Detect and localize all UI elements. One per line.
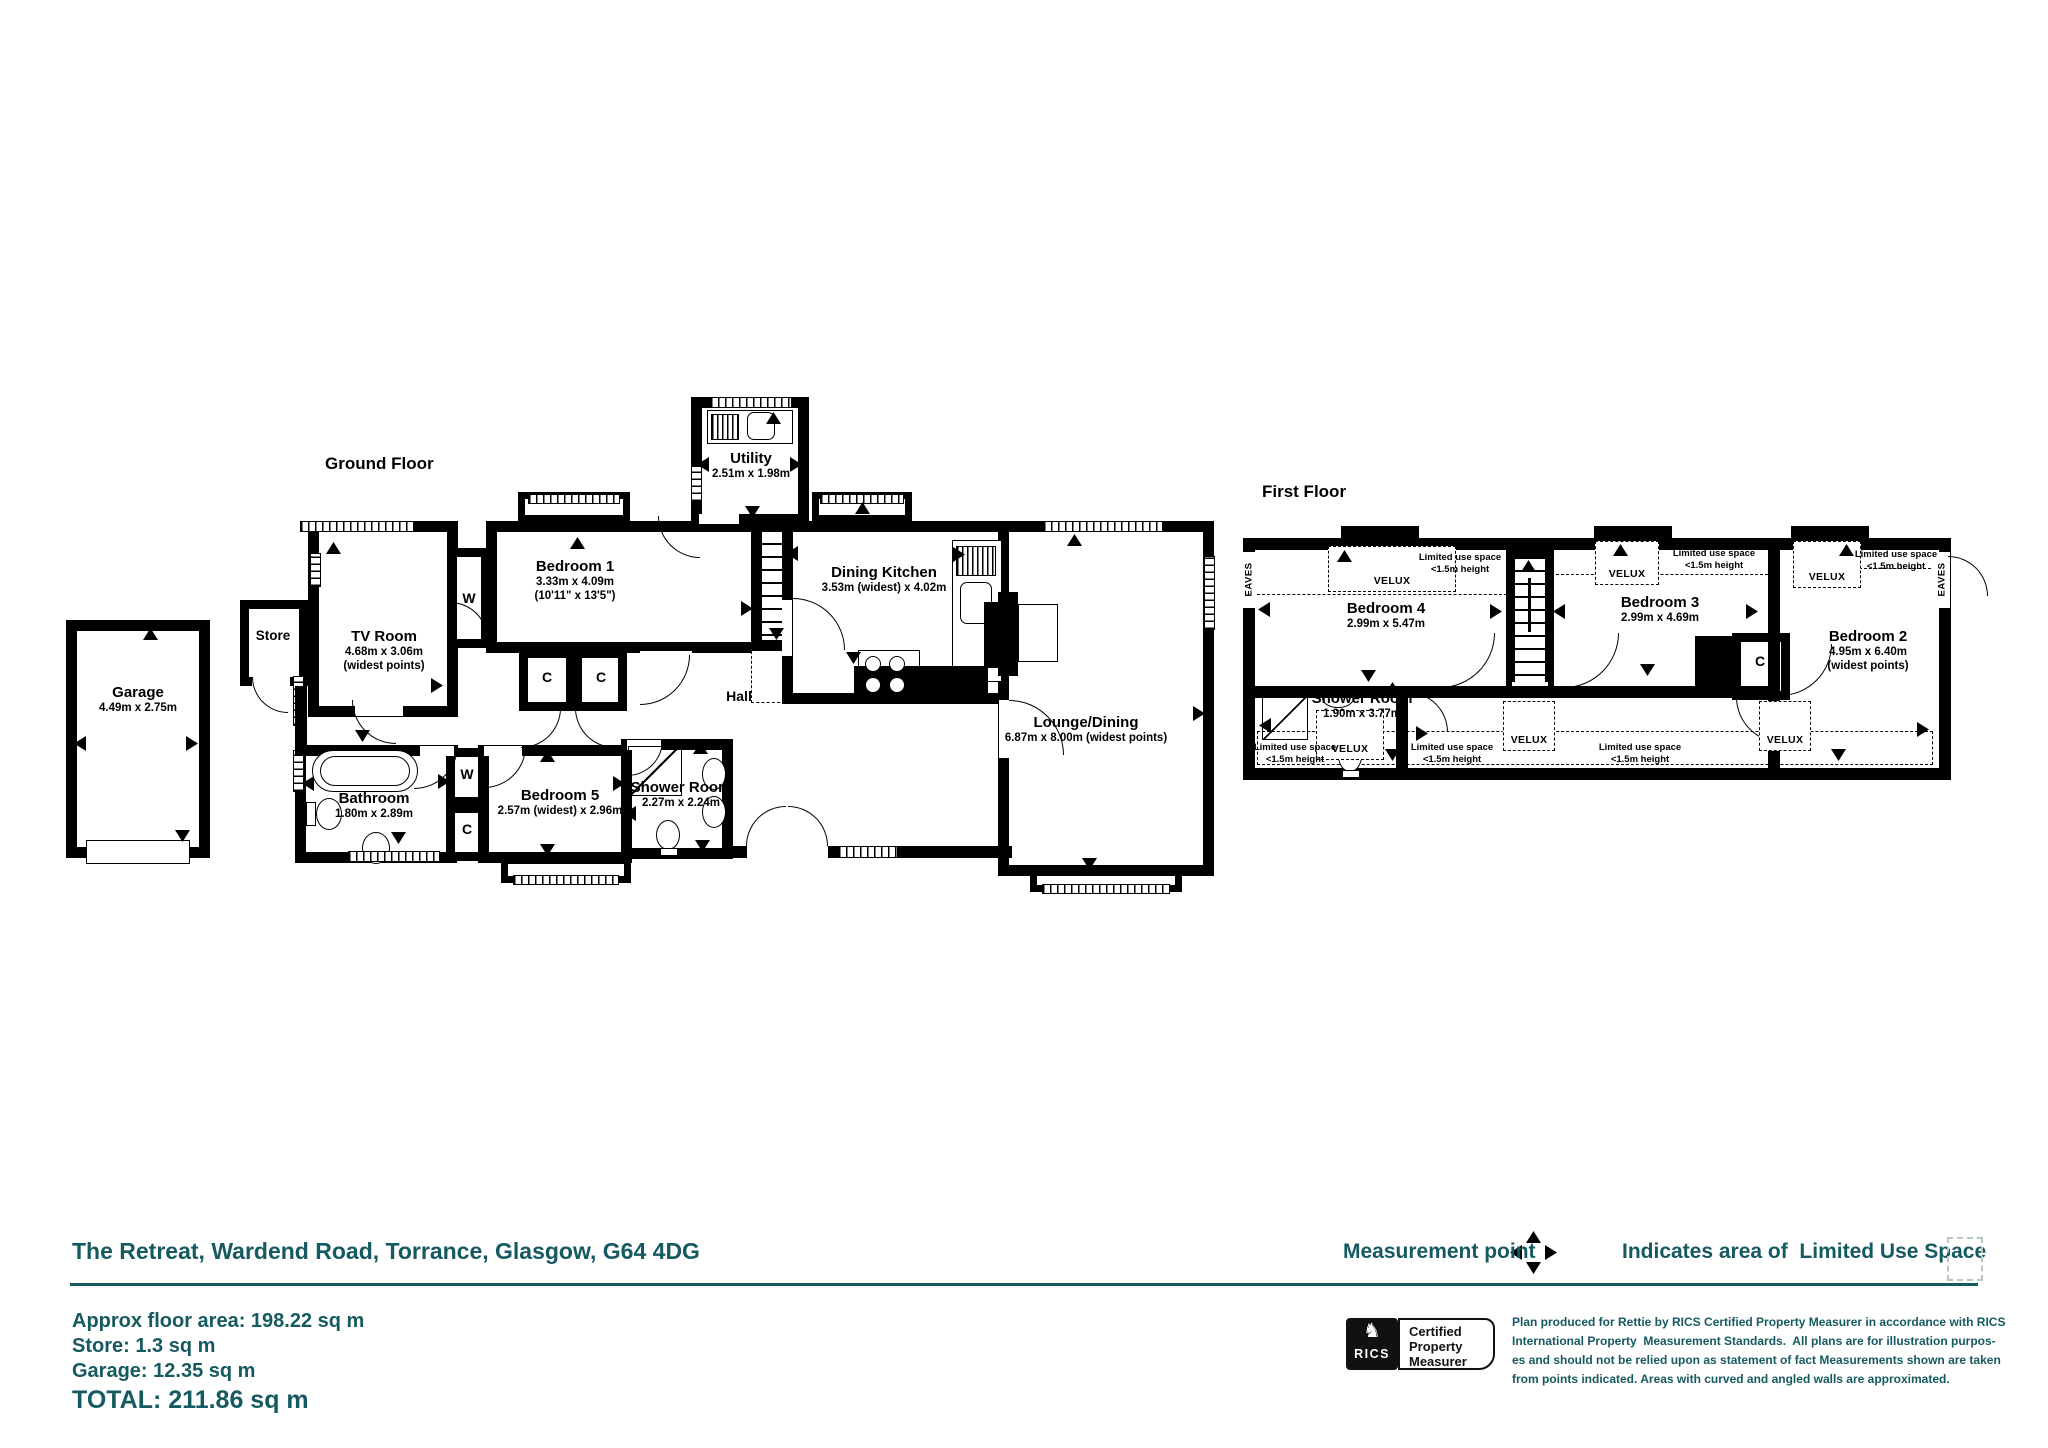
wardrobe-label: W <box>460 766 473 782</box>
toilet-shower-gf <box>656 820 680 850</box>
room-lounge <box>998 521 1214 876</box>
cupboard-label: C <box>542 669 552 685</box>
window <box>293 750 304 792</box>
window <box>820 494 904 504</box>
rics-certified-badge: Certified Property Measurer <box>1398 1318 1495 1370</box>
wall <box>295 686 307 756</box>
legend-limited-use: Indicates area of Limited Use Space <box>1622 1240 1986 1264</box>
eaves-label-right: EAVES <box>1937 552 1948 608</box>
bedroom1-label: Bedroom 1 3.33m x 4.09m (10'11" x 13'5") <box>535 558 616 604</box>
toilet-cistern <box>306 802 316 826</box>
limited-use-legend-icon <box>1947 1237 1983 1281</box>
disclaimer-line: International Property Measurement Stand… <box>1512 1332 1996 1352</box>
velux-roof-window: VELUX <box>1759 701 1811 751</box>
wall <box>725 846 747 858</box>
store-label: Store <box>256 628 291 644</box>
wall <box>898 846 1012 858</box>
wall <box>998 592 1018 676</box>
limited-use-space-label: Limited use space<1.5m height <box>1599 742 1681 765</box>
bedroom3-label: Bedroom 3 2.99m x 4.69m <box>1621 594 1699 626</box>
velux-label: VELUX <box>1609 568 1646 580</box>
cupboard-label: C <box>1755 653 1765 669</box>
hob-burner <box>865 677 881 693</box>
kitchen-drainer <box>956 546 996 576</box>
kitchen-label: Dining Kitchen 3.53m (widest) x 4.02m <box>822 564 947 596</box>
tv-room-label: TV Room 4.68m x 3.06m (widest points) <box>343 628 424 674</box>
garage-label: Garage 4.49m x 2.75m <box>99 684 177 716</box>
door-arc <box>788 806 828 846</box>
door-arc <box>746 806 786 846</box>
window <box>1043 521 1163 532</box>
window <box>528 494 620 504</box>
bedroom2-label: Bedroom 2 4.95m x 6.40m (widest points) <box>1827 628 1908 674</box>
velux-roof-window: VELUX <box>1793 541 1861 588</box>
eaves-label-left: EAVES <box>1244 552 1255 608</box>
legend-measurement-point: Measurement point <box>1343 1240 1536 1264</box>
door-arc <box>352 700 396 744</box>
bathtub-inner <box>320 756 410 786</box>
bedroom5-label: Bedroom 5 2.57m (widest) x 2.96m <box>498 787 623 819</box>
hob-burner <box>889 677 905 693</box>
door-arc <box>521 708 561 748</box>
disclaimer-line: from points indicated. Areas with curved… <box>1512 1370 1950 1390</box>
window <box>1204 556 1215 630</box>
window <box>348 851 440 862</box>
compass-arrow-right <box>1545 1245 1557 1260</box>
limited-use-space-label: Limited use space<1.5m height <box>1254 742 1336 765</box>
cupboard-label: C <box>596 669 606 685</box>
velux-label: VELUX <box>1809 571 1846 583</box>
toilet-cistern <box>1342 770 1360 778</box>
bathroom-label: Bathroom 1.80m x 2.89m <box>335 790 413 822</box>
utility-label: Utility 2.51m x 1.98m <box>712 450 790 482</box>
lounge-label: Lounge/Dining 6.87m x 8.00m (widest poin… <box>1005 714 1167 746</box>
room-bedroom1 <box>486 521 764 653</box>
floorplan-page: Ground Floor First Floor Garage 4.49m x … <box>0 0 2048 1448</box>
approx-floor-area: Approx floor area: 198.22 sq m <box>72 1310 364 1333</box>
door-arc <box>252 677 288 713</box>
disclaimer-line: es and should not be relied upon as stat… <box>1512 1351 2001 1371</box>
window <box>691 466 702 502</box>
measurement-arrow-icon <box>355 730 370 742</box>
wall <box>1528 578 1531 632</box>
door-arc <box>575 708 615 748</box>
velux-label: VELUX <box>1374 575 1411 587</box>
utility-drainer <box>711 414 739 440</box>
total-area: TOTAL: 211.86 sq m <box>72 1386 309 1415</box>
rics-crest-icon: ♞ <box>1346 1318 1398 1344</box>
shower-ff-label: Shower Room 1.90m x 3.77m <box>1312 690 1413 722</box>
bedroom4-label: Bedroom 4 2.99m x 5.47m <box>1347 600 1425 632</box>
window <box>1042 884 1170 894</box>
hall-label: Hall <box>726 688 752 705</box>
shower-tray-ff <box>1262 696 1308 740</box>
door-arc <box>1948 556 1988 596</box>
rics-logo: ♞ RICS <box>1346 1318 1398 1370</box>
limited-use-space-label: Limited use space<1.5m height <box>1411 742 1493 765</box>
limited-use-space-label: Limited use space<1.5m height <box>1673 548 1755 571</box>
wall-opening <box>699 514 739 524</box>
wall <box>828 846 840 858</box>
hob-burner <box>889 656 905 672</box>
garage-area: Garage: 12.35 sq m <box>72 1360 255 1383</box>
wardrobe-label: W <box>462 590 475 606</box>
window <box>710 397 792 408</box>
limited-use-boundary <box>1257 594 1507 595</box>
limited-use-space-label: Limited use space<1.5m height <box>1855 549 1937 572</box>
wall <box>1341 526 1419 540</box>
ground-floor-title: Ground Floor <box>325 454 434 474</box>
cupboard-label: C <box>462 821 472 837</box>
velux-label: VELUX <box>1511 734 1548 746</box>
velux-label: VELUX <box>1332 743 1369 755</box>
window <box>310 553 321 587</box>
toilet-cistern <box>660 848 678 856</box>
shower-gf-label: Shower Room 2.27m x 2.24m <box>631 779 732 811</box>
wall <box>1791 526 1869 540</box>
disclaimer-line: Plan produced for Rettie by RICS Certifi… <box>1512 1313 2005 1333</box>
velux-roof-window: VELUX <box>1503 701 1555 751</box>
door-arc <box>640 655 690 705</box>
divider-rule <box>70 1283 1978 1286</box>
window <box>513 875 619 885</box>
limited-use-boundary <box>1556 574 1768 575</box>
utility-sink <box>747 412 775 440</box>
velux-roof-window: VELUX <box>1595 541 1659 585</box>
limited-use-space-label: Limited use space<1.5m height <box>1419 552 1501 575</box>
garage-door <box>86 840 190 864</box>
velux-label: VELUX <box>1767 734 1804 746</box>
first-floor-title: First Floor <box>1262 482 1346 502</box>
fireplace-recess <box>1018 604 1058 662</box>
window <box>838 846 898 858</box>
window <box>300 521 415 532</box>
wall <box>1594 526 1672 540</box>
store-area: Store: 1.3 sq m <box>72 1335 215 1358</box>
hob-burner <box>865 656 881 672</box>
property-address: The Retreat, Wardend Road, Torrance, Gla… <box>72 1238 700 1265</box>
